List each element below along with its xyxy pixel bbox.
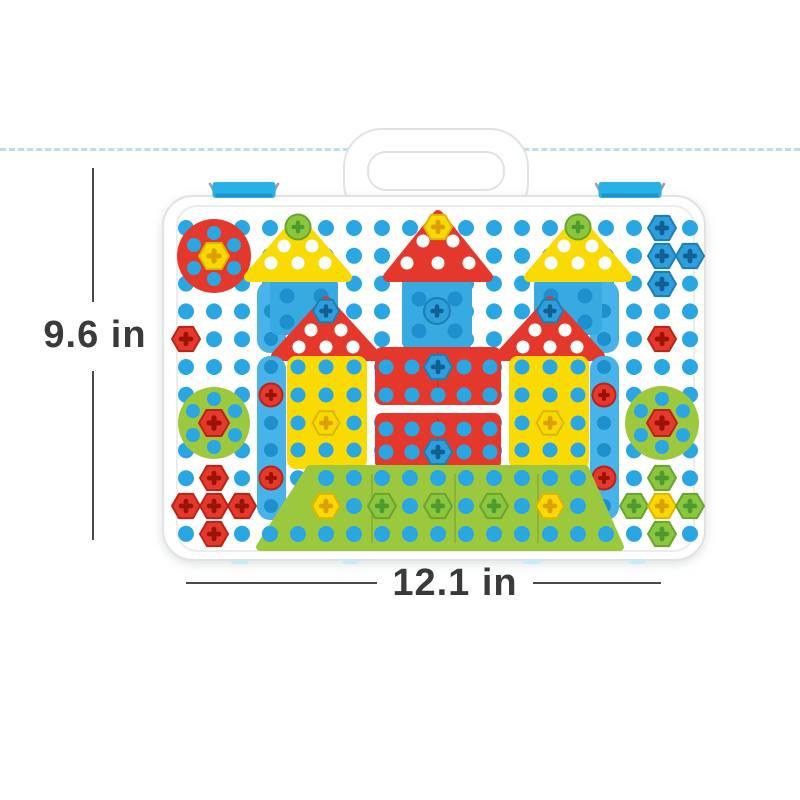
bolt-red-hex-icon [647, 410, 677, 436]
bolt-green-hex-icon [676, 494, 704, 518]
bolt-blue-hex-icon [648, 244, 676, 268]
bolt-red-hex-icon [172, 327, 200, 351]
bolt-red-hex-icon [200, 494, 228, 518]
bolt-red-screw-icon [593, 384, 616, 407]
bolt-yellow-hex-icon [537, 411, 564, 434]
bolt-yellow-hex-icon [312, 494, 340, 518]
bolt-green-screw-icon [566, 215, 591, 240]
piece-base-green-trapezoid [260, 469, 620, 547]
piece-panel-red-lower [375, 413, 501, 469]
bolt-green-hex-icon [620, 494, 648, 518]
piece-tower-yellow-right [509, 356, 589, 469]
bolt-red-hex-icon [172, 494, 200, 518]
width-dimension-line-right [533, 582, 661, 584]
bolt-blue-hex-icon [537, 300, 563, 323]
bolt-red-hex-icon [200, 466, 228, 490]
bolt-red-hex-icon [648, 327, 676, 351]
bolt-green-hex-icon [648, 522, 676, 546]
latch-shade [602, 194, 659, 198]
piece-wall-blue-center [402, 280, 472, 350]
piece-tower-yellow-left [287, 356, 367, 469]
piece-wheel-green-left [178, 387, 250, 459]
bolt-green-hex-icon [424, 494, 452, 518]
bolt-red-hex-icon [200, 522, 228, 546]
height-dimension-line-top [92, 168, 94, 302]
bolt-blue-hex-icon [648, 272, 676, 296]
bolt-green-screw-icon [286, 215, 311, 240]
product-dimension-diagram: 9.6 in 12.1 in [0, 0, 800, 800]
bolt-blue-hex-icon [424, 440, 452, 464]
width-dimension-line-left [186, 582, 377, 584]
bolt-blue-hex-icon [313, 300, 339, 323]
case-foot [629, 559, 646, 564]
latch-shade [216, 194, 273, 198]
bolt-yellow-hex-icon [199, 243, 229, 269]
bolt-green-hex-icon [368, 494, 396, 518]
piece-wheel-green-right [625, 386, 699, 460]
piece-wheel-red [177, 219, 251, 293]
height-dimension-line-bottom [92, 371, 94, 540]
bolt-blue-hex-icon [648, 216, 676, 240]
bolt-green-hex-icon [648, 466, 676, 490]
bolt-green-hex-icon [480, 494, 508, 518]
latch-right [596, 182, 665, 198]
bolt-yellow-hex-icon [648, 494, 676, 518]
height-dimension-label: 9.6 in [19, 314, 171, 358]
bolt-blue-hex-icon [676, 244, 704, 268]
bolt-yellow-hex-icon [536, 494, 564, 518]
bolt-red-hex-icon [228, 494, 256, 518]
width-dimension-label: 12.1 in [379, 562, 531, 606]
handle-grip-hole [368, 152, 504, 190]
bolt-yellow-hex-icon [313, 411, 340, 434]
case-foot [342, 559, 359, 564]
case-foot [231, 559, 248, 564]
piece-panel-red-upper [375, 347, 501, 405]
bolt-blue-screw-icon [424, 298, 450, 324]
bolt-red-screw-icon [260, 467, 283, 490]
toy-case-illustration [0, 0, 800, 800]
bolt-red-hex-icon [199, 410, 229, 436]
bolt-blue-hex-icon [424, 355, 452, 379]
latch-left [210, 182, 279, 198]
bolt-red-screw-icon [260, 384, 283, 407]
piece-pillar-left-lower [257, 356, 286, 520]
bolt-yellow-hex-icon [424, 215, 452, 239]
